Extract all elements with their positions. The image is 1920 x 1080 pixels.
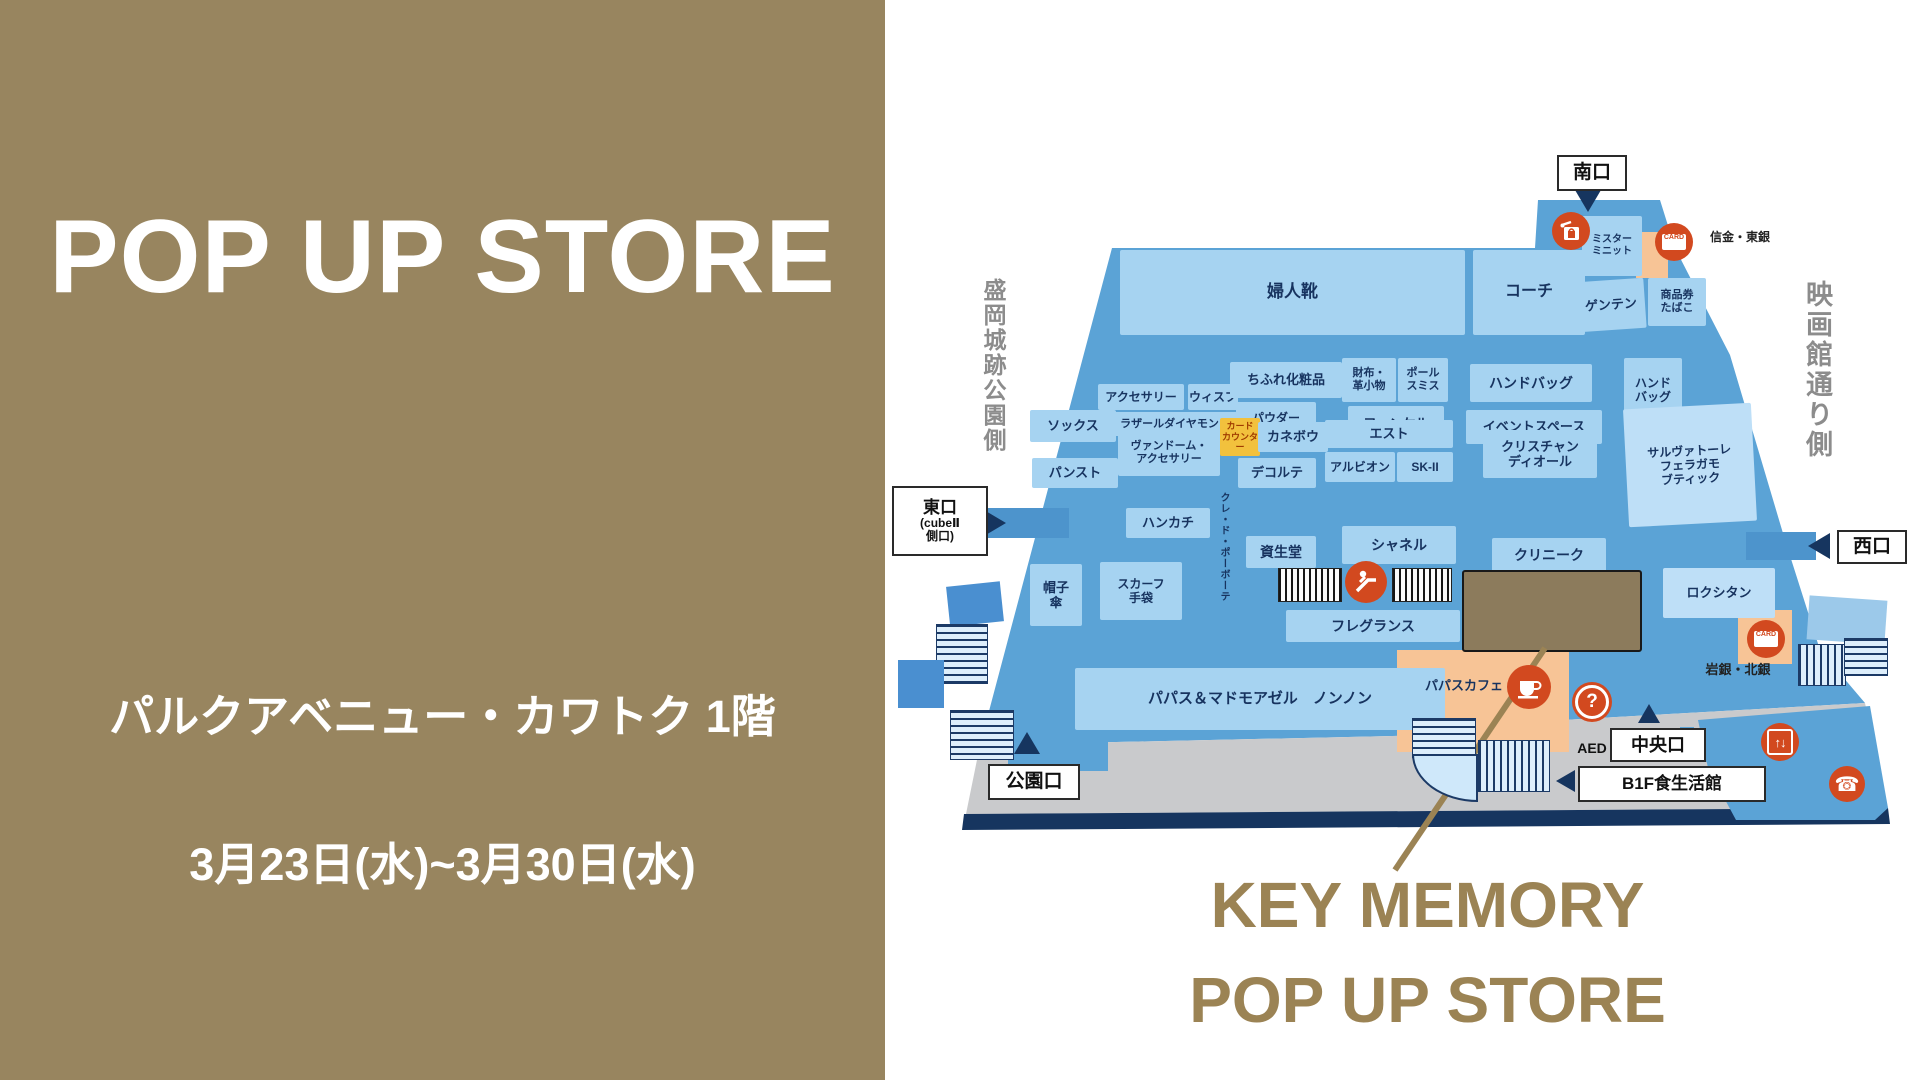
gate-label-central: 中央口	[1610, 728, 1706, 762]
aed-label: AED	[1570, 740, 1614, 757]
gate-label-west: 西口	[1837, 530, 1907, 564]
question-glyph: ?	[1586, 691, 1598, 713]
atm-card-icon: CARD	[1655, 223, 1693, 261]
elevator-icon: ↑↓	[1761, 723, 1799, 761]
promo-dates: 3月23日(水)~3月30日(水)	[0, 828, 885, 893]
locker-icon	[1552, 212, 1590, 250]
promo-panel: POP UP STORE パルクアベニュー・カワトク 1階 3月23日(水)~3…	[0, 0, 885, 1080]
cafe-cup-icon	[1507, 665, 1551, 709]
promo-location: パルクアベニュー・カワトク 1階	[0, 680, 885, 745]
phone-glyph: ☎	[1835, 772, 1860, 797]
stairs-center	[1412, 718, 1476, 758]
callout-line1: KEY MEMORY	[1140, 858, 1715, 953]
east-gate-line3: 側口)	[926, 530, 954, 543]
gate-label-east: 東口 (cubeⅡ 側口)	[892, 486, 988, 556]
b1f-arrow	[1556, 770, 1575, 792]
gate-label-b1f: B1F食生活館	[1578, 766, 1766, 802]
popup-callout: KEY MEMORY POP UP STORE	[1140, 858, 1715, 1047]
card-icon-label: CARD	[1756, 631, 1776, 639]
south-gate-arrow	[1575, 190, 1601, 212]
question-icon: ?	[1572, 682, 1612, 722]
floor-map: 盛岡城跡公園側 映画館通り側 婦人靴 コーチ ミスター ミニット ゲンテン 商品…	[880, 120, 1920, 1080]
stairs-center	[1478, 740, 1550, 792]
promo-title: POP UP STORE	[0, 198, 885, 317]
gate-label-park: 公園口	[988, 764, 1080, 800]
west-gate-arrow	[1808, 533, 1830, 559]
bank-label-gangin: 岩銀・北銀	[1696, 662, 1780, 678]
telephone-icon: ☎	[1829, 766, 1865, 802]
bank-label-shinkin: 信金・東銀	[1698, 230, 1782, 244]
gate-label-south: 南口	[1557, 155, 1627, 191]
park-gate-arrow	[1014, 732, 1040, 754]
card-icon-label: CARD	[1664, 234, 1684, 242]
east-gate-line1: 東口	[923, 499, 957, 517]
central-gate-arrow	[1638, 704, 1660, 723]
callout-line2: POP UP STORE	[1140, 953, 1715, 1048]
atm-card-icon-2: CARD	[1747, 620, 1785, 658]
elevator-arrows-glyph: ↑↓	[1775, 735, 1786, 750]
